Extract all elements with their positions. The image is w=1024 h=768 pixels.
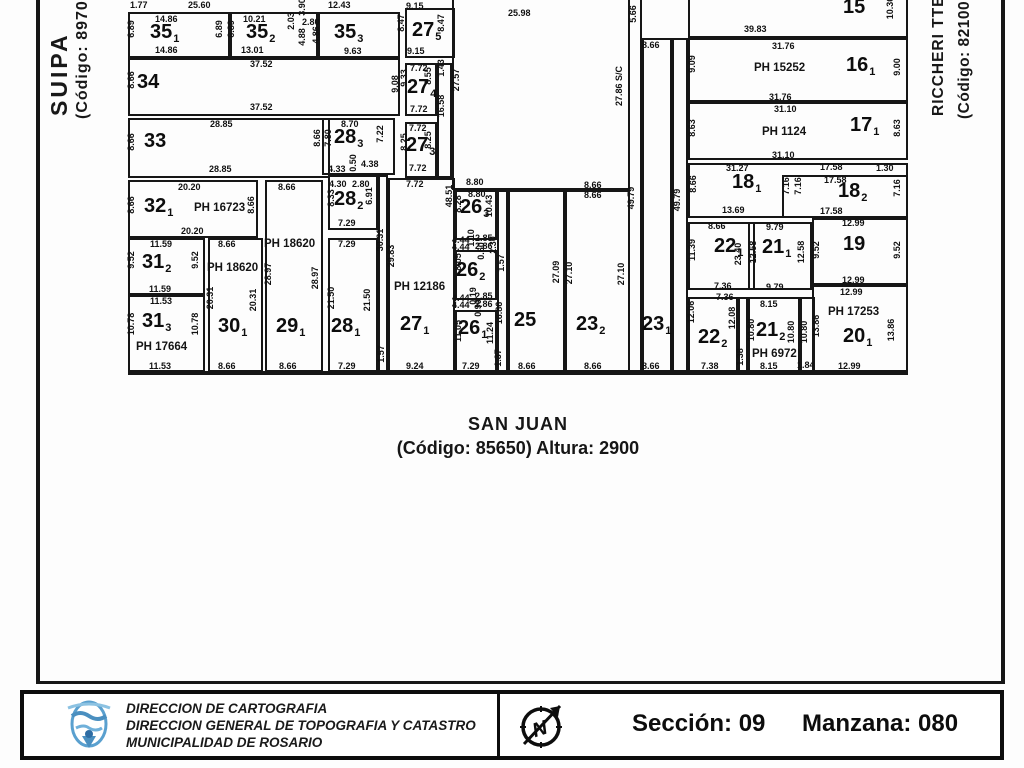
measurement-label: 8.28 [454,195,463,213]
organization-lines: DIRECCION DE CARTOGRAFIA DIRECCION GENER… [126,700,476,751]
map-frame-line [1001,0,1005,684]
measurement-label: 2.03 [287,12,296,30]
measurement-label: 11.53 [150,297,172,306]
parcel-number-23-1: 231 [642,314,671,337]
measurement-label: 13.86 [887,319,896,342]
measurement-label: 1.37 [494,349,503,367]
measurement-label: 7.72 [410,105,428,114]
measurement-label: 0.50 [349,154,358,172]
measurement-label: 1.57 [377,345,386,363]
measurement-label: 8.66 [642,41,660,50]
measurement-label: 12.99 [840,288,863,297]
measurement-label: 27.09 [552,261,561,284]
measurement-label: 10.21 [243,15,266,24]
measurement-label: 9.09 [688,55,697,73]
measurement-label: 11.59 [149,285,171,294]
measurement-label: 14.86 [155,15,178,24]
measurement-label: 8.55 [424,67,433,85]
measurement-label: 8.25 [424,131,433,149]
measurement-label: 29.83 [387,245,396,268]
parcel-number-28-3: 283 [334,127,363,150]
measurement-label: 7.38 [701,362,719,371]
parcel-number-16-1: 161 [846,55,875,78]
map-frame-line [36,681,1005,684]
measurement-label: 4.44 [452,301,470,310]
measurement-label: 8.15 [760,300,778,309]
parcel-number-19: 19 [843,234,865,254]
measurement-label: 11.39 [688,239,697,261]
measurement-label: 7.16 [782,177,791,195]
measurement-label: 20.20 [181,227,204,236]
parcel-number-35-2: 352 [246,22,275,45]
measurement-label: 8.25 [400,133,409,151]
measurement-label: 7.29 [338,219,356,228]
measurement-label: 17.58 [820,163,843,172]
parcel-number-35-3: 353 [334,22,363,45]
measurement-label: 4.88 [298,28,307,46]
measurement-label: 37.52 [250,60,273,69]
measurement-label: 9.15 [406,2,424,11]
measurement-label: 39.83 [744,25,767,34]
measurement-label: 9.24 [406,362,424,371]
measurement-label: 8.80 [466,178,484,187]
measurement-label: 17.58 [820,207,843,216]
measurement-label: 7.72 [409,164,427,173]
measurement-label: 10.36 [886,0,895,19]
parcel-number-18-1: 181 [732,172,761,195]
parcel-number-31-2: 312 [142,252,171,275]
measurement-label: 11.53 [149,362,171,371]
ph-registry-label: PH 15252 [754,62,805,74]
measurement-label: 21.50 [363,289,372,312]
measurement-label: 5.66 [629,5,638,23]
measurement-label: 20.20 [178,183,201,192]
measurement-label: 8.66 [127,133,136,151]
parcel-number-21-2: 212 [756,320,785,343]
measurement-label: 8.05 [454,253,463,271]
measurement-label: 8.66 [689,175,698,193]
measurement-label: 6.89 [227,20,236,38]
measurement-label: 31.76 [769,93,792,102]
org-line-3: MUNICIPALIDAD DE ROSARIO [126,734,476,751]
parcel-number-29-1: 291 [276,316,305,339]
parcel-boundary [437,63,452,178]
measurement-label: 1.77 [130,1,148,10]
measurement-label: 28.97 [264,263,273,286]
measurement-label: 8.66 [708,222,726,231]
measurement-label: 4.38 [361,160,379,169]
measurement-label: 10.43 [485,195,494,218]
measurement-label: 10.78 [127,313,136,336]
measurement-label: 8.66 [127,71,136,89]
measurement-label: 4.44 [452,243,470,252]
measurement-label: 8.15 [760,362,778,371]
parcel-number-30-1: 301 [218,316,247,339]
parcel-boundary [452,0,630,190]
ph-registry-label: PH 6972 [752,348,797,360]
measurement-label: 8.66 [127,196,136,214]
parcel-number-22-2: 222 [698,327,727,350]
measurement-label: 17.58 [824,176,847,185]
measurement-label: 1.57 [497,254,506,272]
measurement-label: 9.52 [127,251,136,269]
street-code-left: (Código: 89700 [74,0,92,119]
measurement-label: 8.66 [518,362,536,371]
measurement-label: 7.36 [716,293,734,302]
measurement-label: 12.99 [842,219,865,228]
street-code-bottom: (Código: 85650) Altura: 2900 [128,438,908,459]
measurement-label: 7.16 [893,179,902,197]
measurement-label: 8.66 [218,240,236,249]
measurement-label: 12.43 [328,1,351,10]
ph-registry-label: PH 12186 [394,281,445,293]
measurement-label: 7.22 [376,125,385,143]
measurement-label: 16.58 [437,95,446,118]
parcel-boundary [378,175,388,372]
measurement-label: 28.85 [210,120,233,129]
parcel-number-31-3: 313 [142,311,171,334]
measurement-label: 8.66 [584,181,602,190]
measurement-label: 7.16 [794,177,803,195]
ph-registry-label: PH 17664 [136,341,187,353]
measurement-label: 0.60 [477,242,486,260]
measurement-label: 1.43 [437,59,446,77]
org-line-2: DIRECCION GENERAL DE TOPOGRAFIA Y CATAST… [126,717,476,734]
street-label-right: RICCHERI TTE. [930,0,948,116]
measurement-label: 12.58 [749,241,758,264]
measurement-label: 1.30 [876,164,894,173]
measurement-label: 49.79 [673,189,682,212]
measurement-label: 9.52 [893,241,902,259]
title-block: DIRECCION DE CARTOGRAFIA DIRECCION GENER… [20,690,1004,760]
measurement-label: 21.50 [327,287,336,310]
measurement-label: 49.79 [627,187,636,210]
measurement-label: 9.15 [407,47,425,56]
measurement-label: 7.72 [406,180,424,189]
measurement-label: 16.86 [495,302,504,325]
measurement-label: 2.30 [489,236,498,254]
parcel-number-21-1: 211 [762,237,791,260]
measurement-label: 9.52 [812,241,821,259]
measurement-label: 28.97 [311,267,320,290]
street-label-left: SUIPA [46,32,73,116]
measurement-label: 8.66 [218,362,236,371]
measurement-label: 10.80 [787,321,796,344]
parcel-number-25: 25 [514,310,536,330]
measurement-label: 8.47 [397,14,406,32]
measurement-label: 4.30 [329,180,347,189]
measurement-label: 1.38 [736,348,745,366]
cadastral-plan-page: 3513523532753427433283273321282312313301… [0,0,1024,768]
municipality-crest-icon [62,698,116,759]
measurement-label: 13.69 [722,206,745,215]
ph-registry-label: PH 18620 [207,262,258,274]
measurement-label: 9.63 [344,47,362,56]
measurement-label: 23.40 [734,243,743,266]
measurement-label: 31.10 [774,105,797,114]
parcel-number-28-2: 282 [334,189,363,212]
measurement-label: 27.10 [565,262,574,285]
measurement-label: 37.52 [250,103,273,112]
parcel-boundary [497,190,508,372]
measurement-label: 8.66 [584,362,602,371]
measurement-label: 9.52 [191,251,200,269]
measurement-label: 12.08 [728,307,737,330]
measurement-label: 20.31 [249,289,258,312]
map-frame-line [36,0,40,684]
measurement-label: 9.79 [766,283,784,292]
measurement-label: 12.58 [797,241,806,264]
ph-registry-label: PH 18620 [264,238,315,250]
measurement-label: 11.59 [150,240,172,249]
measurement-label: 7.29 [338,240,356,249]
street-code-right: (Código: 82100 [956,1,974,119]
parcel-number-28-1: 281 [331,316,360,339]
measurement-label: 7.29 [338,362,356,371]
measurement-label: 25.98 [508,9,531,18]
measurement-label: 31.10 [772,151,795,160]
measurement-label: 10.80 [747,319,756,342]
measurement-label: 27.86 S/C [615,66,624,106]
measurement-label: 6.91 [365,187,374,205]
measurement-label: 6.89 [215,20,224,38]
measurement-label: 1.84 [797,361,815,370]
ph-registry-label: PH 1124 [762,126,806,138]
measurement-label: 13.86 [812,315,821,338]
measurement-label: 9.00 [893,58,902,76]
street-label-bottom: SAN JUAN [128,414,908,435]
measurement-label: 8.66 [642,362,660,371]
measurement-label: 8.66 [278,183,296,192]
measurement-label: 20.31 [206,287,215,310]
measurement-label: 14.86 [155,46,178,55]
measurement-label: 28.85 [209,165,232,174]
measurement-label: 8.33 [327,189,336,207]
measurement-label: 8.66 [584,191,602,200]
measurement-label: 11.05 [454,320,463,342]
parcel-number-32-1: 321 [144,196,173,219]
measurement-label: 8.70 [341,120,359,129]
measurement-label: 8.66 [313,129,322,147]
ph-registry-label: PH 16723 [194,202,245,214]
measurement-label: 31.27 [726,164,749,173]
measurement-label: 10.80 [800,321,809,344]
measurement-label: 31.76 [772,42,795,51]
measurement-label: 7.36 [714,282,732,291]
measurement-label: 11.24 [486,322,495,344]
measurement-label: 4.33 [328,165,346,174]
measurement-label: 8.47 [437,14,446,32]
measurement-label: 7.80 [324,129,333,147]
footer-divider [497,694,500,756]
measurement-label: 7.29 [462,362,480,371]
measurement-label: 8.66 [279,362,297,371]
measurement-label: 8.80 [468,190,486,199]
parcel-number-15: 15 [843,0,865,17]
north-arrow-icon: N [514,698,568,757]
measurement-label: 12.99 [838,362,861,371]
parcel-number-35-1: 351 [150,22,179,45]
measurement-label: 30.31 [376,229,385,252]
measurement-label: 27.57 [452,69,461,92]
measurement-label: 4.86 [312,26,321,44]
parcel-number-33: 33 [144,131,166,151]
measurement-label: 12.99 [842,276,865,285]
parcel-number-27-1: 271 [400,314,429,337]
parcel-number-23-2: 232 [576,314,605,337]
parcel-boundary [688,0,908,38]
measurement-label: 12.06 [687,301,696,324]
measurement-label: 9.79 [766,223,784,232]
measurement-label: 0.90 [474,299,483,317]
measurement-label: 6.89 [127,20,136,38]
measurement-label: 10.78 [191,313,200,336]
manzana-value: Manzana: 080 [802,710,958,738]
parcel-number-20-1: 201 [843,326,872,349]
measurement-label: 25.60 [188,1,211,10]
measurement-label: 8.63 [688,119,697,137]
parcel-number-34: 34 [137,72,159,92]
measurement-label: 9.33 [400,69,409,87]
measurement-label: 8.63 [893,119,902,137]
measurement-label: 8.66 [247,196,256,214]
section-value: Sección: 09 [632,710,765,738]
org-line-1: DIRECCION DE CARTOGRAFIA [126,700,476,717]
measurement-label: 13.01 [241,46,264,55]
map-frame-line [128,371,908,375]
parcel-number-17-1: 171 [850,115,879,138]
measurement-label: 3.90 [298,0,307,16]
ph-registry-label: PH 17253 [828,306,879,318]
measurement-label: 27.10 [617,263,626,286]
